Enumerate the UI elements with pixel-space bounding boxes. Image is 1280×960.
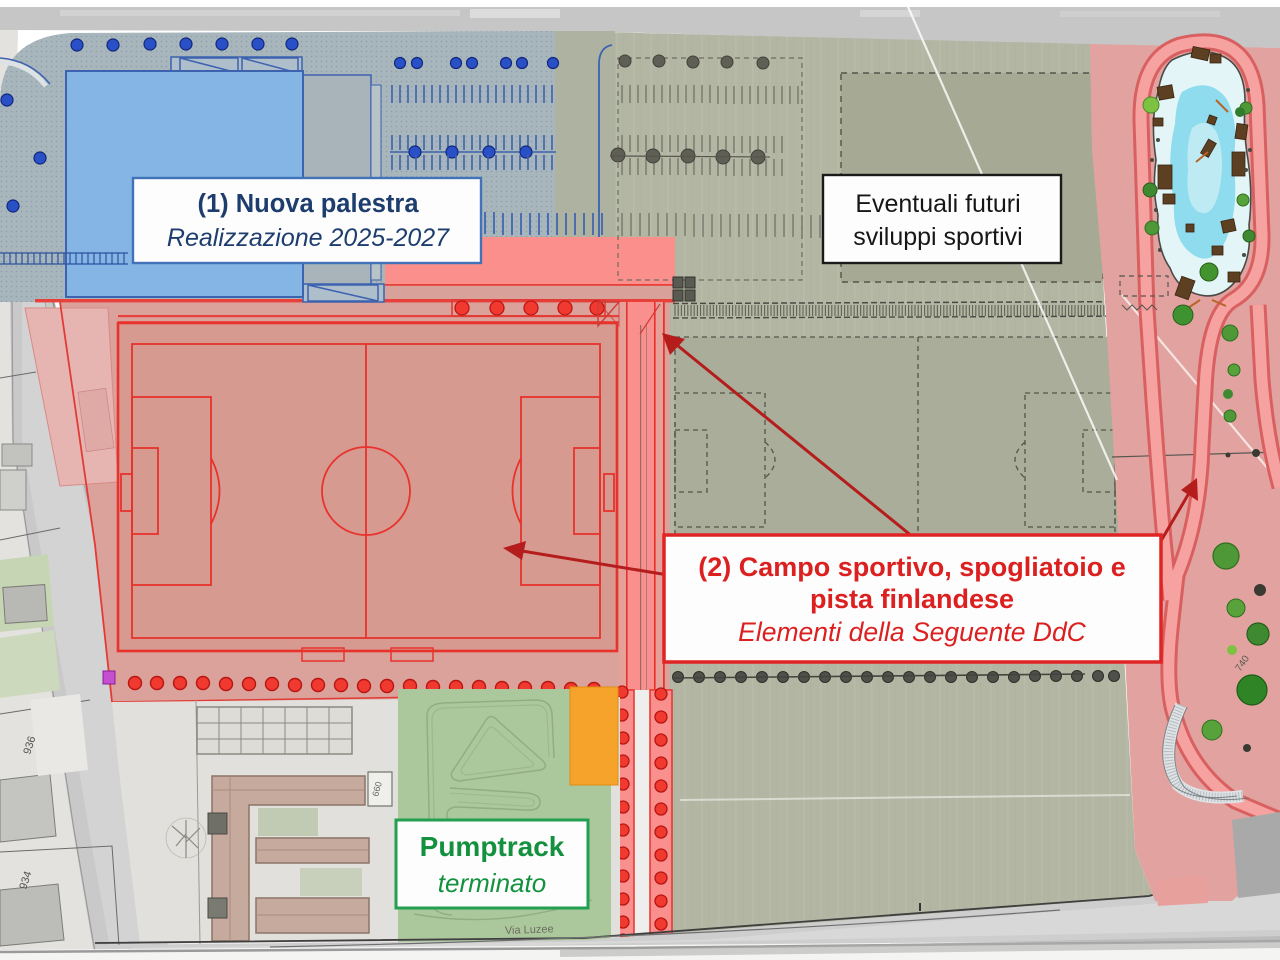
svg-text:(2) Campo sportivo, spogliatoi: (2) Campo sportivo, spogliatoio e [698,552,1126,582]
svg-text:Pumptrack: Pumptrack [420,831,565,862]
svg-text:Elementi della Seguente DdC: Elementi della Seguente DdC [738,617,1087,647]
svg-text:pista finlandese: pista finlandese [810,584,1014,614]
svg-text:terminato: terminato [438,868,546,898]
svg-text:(1) Nuova palestra: (1) Nuova palestra [197,190,419,218]
svg-text:Eventuali futuri: Eventuali futuri [855,190,1020,218]
svg-text:sviluppi sportivi: sviluppi sportivi [853,223,1023,251]
svg-text:Via Luzee: Via Luzee [505,923,554,937]
svg-text:Realizzazione 2025-2027: Realizzazione 2025-2027 [167,224,450,252]
